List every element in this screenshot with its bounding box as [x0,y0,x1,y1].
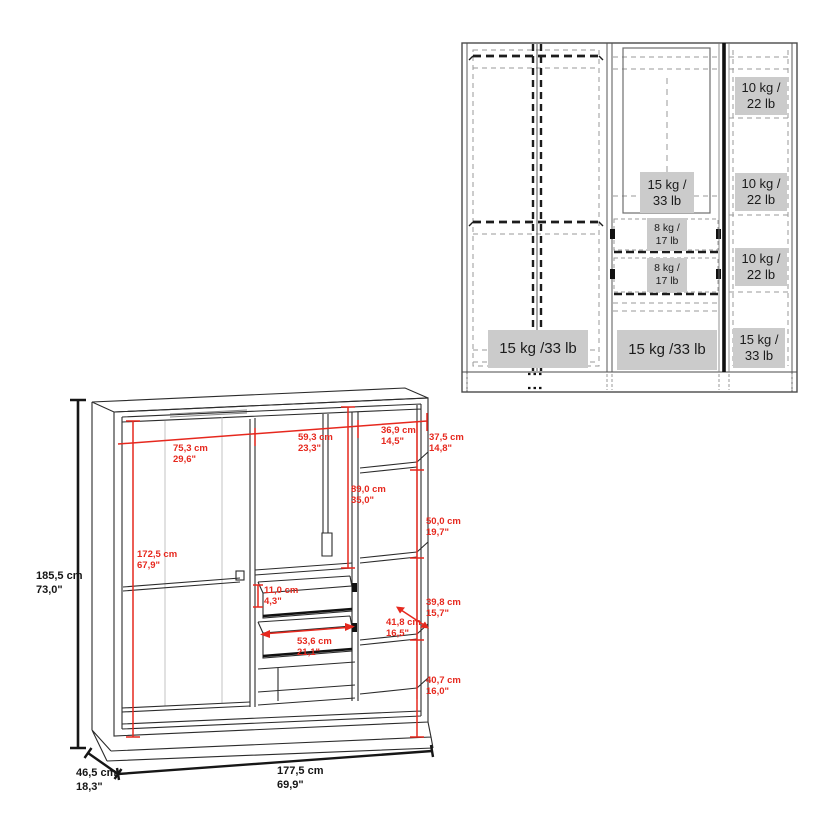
dim-drawer-width: 53,6 cm 21,1" [297,636,332,659]
dim-right-top-shelf-height: 37,5 cm 14,8" [429,432,464,455]
capacity-label-right-bottom: 15 kg / 33 lb [733,328,785,368]
capacity-label-left-bottom: 15 kg /33 lb [488,330,588,368]
front-view-base [467,374,792,390]
wardrobe-line-art [0,0,840,840]
dim-overall-depth: 46,5 cm 18,3" [76,766,116,795]
dim-middle-hang-height: 89,0 cm 35,0" [351,484,386,507]
divider-foot [322,533,332,556]
capacity-label-mid-bottom: 15 kg /33 lb [617,330,717,370]
capacity-label-drawer-bottom: 8 kg / 17 lb [647,258,687,292]
drawer-width-dim [262,627,353,634]
capacity-label-drawer-top: 8 kg / 17 lb [647,218,687,251]
capacity-label-mirror: 15 kg / 33 lb [640,172,694,213]
left-side [92,402,111,761]
dim-left-hang-height: 172,5 cm 67,9" [137,549,177,572]
dim-right-shelf2-height: 50,0 cm 19,7" [426,516,461,539]
middle-cubby [258,662,355,705]
dim-right-shelf3-height: 39,8 cm 15,7" [426,597,461,620]
front-view-left-section [469,44,603,371]
dim-overall-width: 177,5 cm 69,9" [277,764,323,793]
capacity-label-right-lower: 10 kg / 22 lb [735,248,787,286]
capacity-label-right-mid: 10 kg / 22 lb [735,173,787,211]
dim-right-opening-width: 36,9 cm 14,5" [381,425,416,448]
dim-middle-opening-width: 59,3 cm 23,3" [298,432,333,455]
left-hang-dim [126,421,140,737]
dim-overall-height: 185,5 cm 73,0" [36,569,82,598]
left-floor [122,702,250,712]
manual-page: 15 kg /33 lb 15 kg / 33 lb 8 kg / 17 lb … [0,0,840,840]
middle-shelf [255,563,352,575]
dividers [250,405,417,707]
right-column-dims [410,421,424,737]
capacity-label-right-top: 10 kg / 22 lb [735,77,787,115]
dim-drawer-height: 11,0 cm 4,3" [264,585,298,608]
mid-rod [123,578,240,591]
dim-left-opening-width: 75,3 cm 29,6" [173,443,208,466]
dim-shelf-depth: 41,8 cm 16,5" [386,617,421,640]
dim-right-bottom-height: 40,7 cm 16,0" [426,675,461,698]
